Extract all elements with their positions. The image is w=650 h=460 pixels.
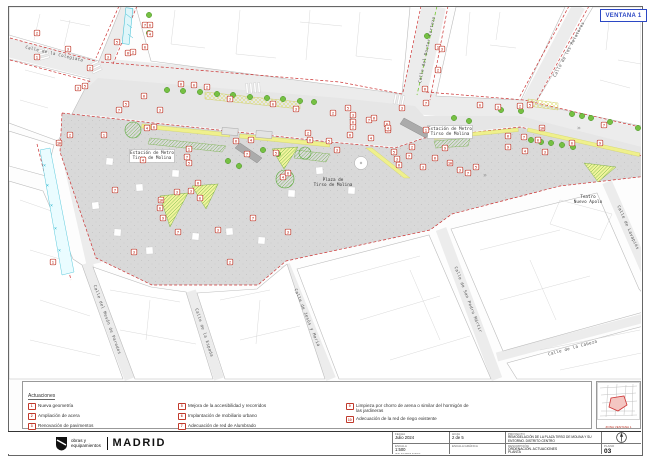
action-marker: 3 [420,164,426,170]
action-marker: 3 [542,149,548,155]
svg-text:3: 3 [190,189,192,193]
action-marker: 5 [186,160,192,166]
svg-text:8: 8 [153,125,155,129]
legend-item-text: Nueva geometría [38,403,73,411]
svg-text:7: 7 [467,171,469,175]
svg-text:2: 2 [89,66,91,70]
tree-icon [164,87,169,92]
action-marker: 10 [158,197,164,203]
svg-text:3: 3 [67,47,69,51]
action-marker: 8 [535,137,541,143]
action-marker: 2 [34,30,40,36]
svg-text:4: 4 [142,158,144,162]
svg-text:7: 7 [603,123,605,127]
tree-icon [236,163,241,168]
action-marker: 7 [112,187,118,193]
field-hoja: Hoja 2 de 5 [450,432,505,444]
svg-text:7: 7 [523,135,525,139]
svg-text:5: 5 [529,103,531,107]
action-marker: 3 [227,96,233,102]
svg-text:8: 8 [287,171,289,175]
action-marker: 6 [141,93,147,99]
svg-text:2: 2 [352,125,354,129]
svg-text:8: 8 [537,138,539,142]
svg-text:×: × [43,163,46,169]
existing-tree-icon [299,147,311,159]
logo-divider [107,437,109,450]
field-col-d: Plano 03 [601,432,641,454]
action-marker: 8 [350,119,356,125]
place-label: Tirso de Molina [314,182,353,188]
action-marker: 3 [105,54,111,60]
svg-text:1: 1 [437,45,439,49]
svg-text:6: 6 [309,138,311,142]
action-marker: 1 [423,127,429,133]
svg-text:4: 4 [370,136,372,140]
action-marker: 10 [539,125,545,131]
action-marker: 6 [178,81,184,87]
legend-item-number: 9 [346,403,354,411]
action-marker: 3 [334,147,340,153]
place-label: Estación de Metro [428,125,472,132]
action-marker: 8 [569,140,575,146]
svg-text:1: 1 [425,128,427,132]
action-marker: 7 [250,215,256,221]
action-marker: 4 [248,137,254,143]
field-col-b: Hoja 2 de 5 Escala Gráfica m [449,432,505,454]
legend-title: Actuaciones [28,393,55,400]
action-marker: 1 [50,259,56,265]
legend-item-text: Limpieza por chorro de arena o similar d… [356,403,474,414]
svg-text:5: 5 [328,139,330,143]
legend-item-number: 6 [178,413,186,421]
legend-item-text: Mejora de la accesibilidad y recorridos [188,403,266,411]
legend-item-text: Adecuación de la red de riego existente [356,416,437,424]
action-marker: 2 [67,132,73,138]
action-marker: 7 [601,122,607,128]
field-proyecto: Proyecto REMODELACIÓN DE LA PLAZA TIRSO … [506,432,601,444]
action-marker: 1 [186,146,192,152]
svg-text:6: 6 [424,87,426,91]
svg-text:6: 6 [507,134,509,138]
svg-text:1: 1 [36,55,38,59]
madrid-shield-icon [55,436,68,451]
svg-text:4: 4 [149,32,151,36]
svg-text:3: 3 [295,107,297,111]
svg-text:4: 4 [250,138,252,142]
keymap-caption: ZONA VENTANA 1 [597,426,640,429]
action-marker: 3 [350,112,356,118]
svg-text:3: 3 [107,55,109,59]
tree-icon [579,113,584,118]
field-escala-grafica: Escala Gráfica m [450,444,505,455]
svg-text:6: 6 [349,133,351,137]
legend-item-number: 3 [28,423,36,431]
action-marker: 7 [184,154,190,160]
action-marker: 2 [305,130,311,136]
action-marker: 3 [439,46,445,52]
svg-text:2: 2 [36,31,38,35]
svg-text:2: 2 [307,131,309,135]
action-marker: 6 [432,155,438,161]
action-marker: 5 [527,102,533,108]
logo-text: obras y equipamientos [71,438,101,449]
action-marker: 3 [495,104,501,110]
action-marker: 3 [188,188,194,194]
location-keymap: ZONA VENTANA 1 [596,381,641,429]
logo-city: MADRID [112,437,166,449]
legend-item: 7Adecuación de red de Alumbrado [178,423,306,431]
legend-item: 3Renovación de pavimentos [28,423,156,431]
action-marker: 7 [175,229,181,235]
drawing-sheet: » » » ××× ×× [0,0,650,460]
svg-text:10: 10 [540,126,544,130]
tree-icon [311,99,316,104]
svg-text:3: 3 [217,228,219,232]
svg-text:6: 6 [180,82,182,86]
svg-text:10: 10 [159,198,163,202]
svg-text:3: 3 [352,113,354,117]
legend-item: 9Limpieza por chorro de arena o similar … [346,403,474,414]
svg-text:6: 6 [143,94,145,98]
svg-text:1: 1 [52,260,54,264]
place-label: Tirso de Molina [133,155,172,161]
svg-text:8: 8 [479,103,481,107]
svg-text:8: 8 [193,83,195,87]
svg-text:9: 9 [444,146,446,150]
tree-icon [146,12,151,17]
legend-item-number: 2 [28,413,36,421]
svg-text:2: 2 [437,68,439,72]
svg-text:7: 7 [252,216,254,220]
action-marker: 3 [215,227,221,233]
svg-text:6: 6 [197,181,199,185]
svg-text:5: 5 [116,40,118,44]
scale-bar: m [452,454,498,455]
action-marker: 3 [131,249,137,255]
svg-text:5: 5 [125,102,127,106]
action-marker: 10 [447,160,453,166]
legend-item-number: 7 [178,423,186,431]
legend-item: 6Implantación de mobiliario urbano [178,413,306,421]
svg-text:7: 7 [177,230,179,234]
svg-text:2: 2 [69,133,71,137]
svg-text:2: 2 [519,104,521,108]
svg-text:7: 7 [144,23,146,27]
action-marker: 5 [326,138,332,144]
svg-text:»: » [483,171,487,179]
legend-item-text: Ampliación de acera [38,413,80,421]
action-marker: 7 [406,153,412,159]
svg-text:7: 7 [186,155,188,159]
svg-text:×: × [50,203,53,209]
action-marker: 5 [82,83,88,89]
tree-icon [297,98,302,103]
legend-panel: Actuaciones 1Nueva geometría2Ampliación … [22,381,592,429]
svg-text:7: 7 [246,152,248,156]
svg-text:7: 7 [408,154,410,158]
action-marker: 5 [345,105,351,111]
action-marker: 4 [140,157,146,163]
logo-line2: equipamientos [71,443,101,448]
action-marker: 6 [371,115,377,121]
svg-text:×: × [58,248,61,254]
action-marker: 8 [477,102,483,108]
action-marker: 8 [147,22,153,28]
action-marker: 4 [385,125,391,131]
action-marker: 3 [394,156,400,162]
svg-text:8: 8 [144,45,146,49]
svg-text:3: 3 [229,97,231,101]
svg-text:4: 4 [524,149,526,153]
svg-text:3: 3 [497,105,499,109]
action-marker: 3 [174,189,180,195]
svg-text:3: 3 [544,150,546,154]
svg-text:×: × [54,226,57,232]
svg-text:9: 9 [507,145,509,149]
action-marker: 2 [517,103,523,109]
svg-text:8: 8 [199,196,201,200]
tree-icon [280,96,285,101]
tree-icon [214,91,219,96]
action-marker: 6 [505,133,511,139]
tree-icon [260,147,265,152]
field-escala: Escala 1:500 (EN A3 REDUCIDO) [393,444,449,455]
action-marker: 2 [87,65,93,71]
field-plano: Plano 03 [602,444,641,455]
legend-item: 2Ampliación de acera [28,413,156,421]
svg-text:4: 4 [146,126,148,130]
tree-icon [528,137,533,142]
action-marker: 2 [330,110,336,116]
action-marker: 9 [442,145,448,151]
field-col-c: Proyecto REMODELACIÓN DE LA PLAZA TIRSO … [505,432,601,454]
svg-text:7: 7 [368,118,370,122]
action-marker: 1 [101,132,107,138]
svg-text:10: 10 [448,161,452,165]
tree-icon [559,142,564,147]
action-marker: 5 [273,150,279,156]
svg-text:3: 3 [77,86,79,90]
tree-icon [548,140,553,145]
svg-text:6: 6 [235,139,237,143]
svg-text:3: 3 [133,250,135,254]
fountain [355,157,368,170]
svg-text:1: 1 [103,133,105,137]
svg-text:2: 2 [229,260,231,264]
action-marker: 7 [244,151,250,157]
action-marker: 4 [522,148,528,154]
action-marker: 2 [409,144,415,150]
action-marker: 4 [147,31,153,37]
tree-icon [607,119,612,124]
svg-text:»: » [577,124,582,132]
field-fecha: Fecha Julio 2024 [393,432,449,444]
action-marker: 3 [285,229,291,235]
svg-text:3: 3 [422,165,424,169]
legend-item-text: Renovación de pavimentos [38,423,93,431]
existing-tree-icon [125,122,141,138]
svg-text:5: 5 [84,84,86,88]
action-marker: 6 [396,162,402,168]
svg-text:8: 8 [159,206,161,210]
svg-text:6: 6 [398,163,400,167]
svg-text:8: 8 [149,23,151,27]
tree-icon [225,158,230,163]
action-marker: 5 [473,164,479,170]
svg-text:8: 8 [272,102,274,106]
north-arrow-cell [602,432,641,444]
action-marker: 3 [457,167,463,173]
legend-item: 5Mejora de la accesibilidad y recorridos [178,403,306,411]
place-label: Tirso de Molina [431,131,470,137]
action-marker: 1 [34,54,40,60]
action-marker: 8 [191,82,197,88]
title-block: obras y equipamientos MADRID Fecha Julio… [8,431,641,454]
svg-text:6: 6 [434,156,436,160]
action-marker: 3 [65,46,71,52]
action-marker: 6 [307,137,313,143]
action-marker: 3 [157,107,163,113]
tree-icon [569,111,574,116]
action-marker: 7 [423,100,429,106]
svg-text:2: 2 [132,50,134,54]
action-marker: 4 [368,135,374,141]
svg-text:4: 4 [387,126,389,130]
svg-text:2: 2 [332,111,334,115]
action-marker: 3 [75,85,81,91]
action-marker: 8 [285,170,291,176]
svg-text:7: 7 [425,101,427,105]
action-marker: 8 [197,195,203,201]
svg-text:3: 3 [459,168,461,172]
action-marker: 6 [195,180,201,186]
action-marker: 5 [391,149,397,155]
svg-text:3: 3 [287,230,289,234]
action-marker: 7 [116,107,122,113]
tree-icon [197,89,202,94]
svg-text:3: 3 [401,106,403,110]
svg-text:6: 6 [373,116,375,120]
legend-item-text: Adecuación de red de Alumbrado [188,423,256,431]
action-marker: 2 [204,84,210,90]
tree-icon [466,118,471,123]
tree-icon [635,125,640,130]
place-label: Estación de Metro [130,149,174,156]
svg-text:7: 7 [114,188,116,192]
svg-text:8: 8 [571,141,573,145]
svg-text:8: 8 [352,120,354,124]
action-marker: 7 [465,170,471,176]
legend-item-number: 1 [28,403,36,411]
action-marker: 10 [56,140,62,146]
svg-text:2: 2 [206,85,208,89]
place-label: Nuevo Apolo [574,199,603,205]
svg-text:7: 7 [118,108,120,112]
svg-text:5: 5 [347,106,349,110]
svg-text:5: 5 [188,161,190,165]
tree-icon [247,94,252,99]
action-marker: 8 [157,205,163,211]
field-descripcion: Descripción ORDENACIÓN. ACTUACIONES PLAN… [506,444,601,455]
legend-item-text: Implantación de mobiliario urbano [188,413,257,421]
legend-item-number: 5 [178,403,186,411]
action-marker: 3 [293,106,299,112]
legend-item-number: 10 [346,416,354,424]
action-marker: 7 [521,134,527,140]
svg-text:5: 5 [475,165,477,169]
svg-text:10: 10 [57,141,61,145]
ventana-badge: VENTANA 1 [600,9,647,22]
action-marker: 9 [597,140,603,146]
svg-text:5: 5 [275,151,277,155]
action-marker: 5 [114,39,120,45]
svg-text:3: 3 [176,190,178,194]
action-marker: 2 [227,259,233,265]
tree-icon [451,115,456,120]
action-marker: 5 [123,101,129,107]
svg-text:×: × [46,183,49,189]
tree-icon [264,95,269,100]
svg-text:2: 2 [411,145,413,149]
svg-text:3: 3 [159,108,161,112]
action-marker: 3 [399,105,405,111]
title-block-logo-area: obras y equipamientos MADRID [8,432,238,454]
tree-icon [588,115,593,120]
action-marker: 9 [505,144,511,150]
action-marker: 6 [422,86,428,92]
svg-text:3: 3 [441,47,443,51]
svg-text:4: 4 [282,175,284,179]
svg-text:3: 3 [336,148,338,152]
svg-text:1: 1 [188,147,190,151]
svg-text:9: 9 [599,141,601,145]
action-marker: 8 [142,44,148,50]
action-marker: 6 [233,138,239,144]
svg-text:3: 3 [396,157,398,161]
keymap-drawing [597,382,640,420]
svg-text:9: 9 [162,216,164,220]
action-marker: 2 [435,67,441,73]
action-marker: 6 [347,132,353,138]
action-marker: 2 [130,49,136,55]
svg-text:6: 6 [127,51,129,55]
svg-text:5: 5 [393,150,395,154]
legend-item: 1Nueva geometría [28,403,156,411]
field-col-a: Fecha Julio 2024 Escala 1:500 (EN A3 RED… [392,432,449,454]
title-block-fields: Fecha Julio 2024 Escala 1:500 (EN A3 RED… [392,432,641,454]
action-marker: 8 [270,101,276,107]
action-marker: 4 [144,125,150,131]
legend-item: 10Adecuación de la red de riego existent… [346,416,474,424]
action-marker: 8 [151,124,157,130]
tree-icon [180,88,185,93]
north-arrow-icon [615,432,628,444]
action-marker: 9 [160,215,166,221]
